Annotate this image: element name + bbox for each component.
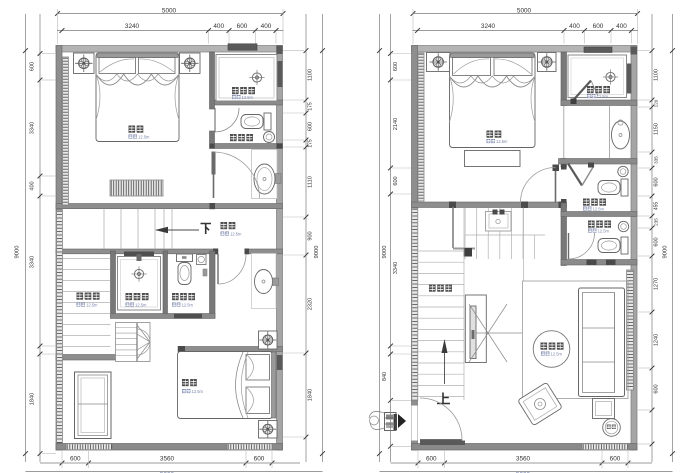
svg-text:9000: 9000 — [382, 246, 388, 259]
svg-text:3560: 3560 — [516, 456, 531, 463]
svg-text:12.5m: 12.5m — [598, 228, 610, 233]
svg-text:600: 600 — [254, 456, 265, 463]
svg-text:12.5m: 12.5m — [242, 95, 254, 100]
svg-text:3560: 3560 — [160, 456, 175, 463]
svg-text:1240: 1240 — [654, 334, 660, 346]
svg-text:1150: 1150 — [654, 123, 660, 135]
svg-text:12.5m: 12.5m — [182, 302, 194, 307]
svg-text:12.5m: 12.5m — [192, 389, 204, 394]
svg-text:400: 400 — [569, 23, 580, 30]
svg-text:2320: 2320 — [308, 298, 314, 310]
svg-text:120: 120 — [654, 99, 659, 107]
svg-text:840: 840 — [382, 372, 388, 381]
svg-text:400: 400 — [30, 181, 36, 190]
svg-text:12.5m: 12.5m — [86, 302, 98, 307]
svg-text:235: 235 — [654, 218, 659, 226]
svg-text:3240: 3240 — [481, 23, 496, 30]
svg-text:1270: 1270 — [654, 278, 660, 290]
svg-text:600: 600 — [610, 456, 621, 463]
svg-text:600: 600 — [654, 237, 660, 246]
svg-text:600: 600 — [308, 122, 314, 131]
svg-text:600: 600 — [593, 23, 604, 30]
svg-text:400: 400 — [616, 23, 627, 30]
svg-text:9000: 9000 — [15, 246, 21, 259]
svg-text:1840: 1840 — [30, 393, 36, 405]
svg-text:12.5m: 12.5m — [496, 139, 508, 144]
svg-text:335: 335 — [654, 156, 659, 164]
svg-text:3240: 3240 — [125, 23, 140, 30]
svg-text:3340: 3340 — [393, 262, 399, 274]
svg-text:12.5m: 12.5m — [138, 134, 150, 139]
svg-text:600: 600 — [30, 62, 36, 71]
svg-text:600: 600 — [426, 456, 437, 463]
svg-text:600: 600 — [654, 384, 660, 393]
svg-text:5000: 5000 — [162, 8, 177, 15]
svg-text:600: 600 — [393, 176, 399, 185]
svg-text:2140: 2140 — [393, 118, 399, 130]
svg-text:12.5m: 12.5m — [597, 94, 609, 99]
svg-text:3340: 3340 — [30, 122, 36, 134]
svg-text:5000: 5000 — [517, 8, 532, 15]
svg-text:600: 600 — [393, 62, 399, 71]
svg-text:12.5m: 12.5m — [551, 351, 563, 356]
svg-text:9000: 9000 — [314, 246, 320, 259]
svg-text:600: 600 — [237, 23, 248, 30]
svg-text:600: 600 — [654, 177, 660, 186]
svg-text:900: 900 — [308, 231, 314, 240]
svg-text:1110: 1110 — [308, 176, 314, 188]
svg-text:9000: 9000 — [663, 246, 669, 259]
svg-text:3340: 3340 — [30, 256, 36, 268]
svg-text:175: 175 — [308, 139, 314, 148]
svg-text:1100: 1100 — [654, 69, 660, 81]
svg-text:175: 175 — [308, 102, 314, 111]
svg-text:455: 455 — [654, 202, 660, 211]
svg-text:400: 400 — [213, 23, 224, 30]
svg-text:12.5m: 12.5m — [593, 206, 605, 211]
svg-text:400: 400 — [261, 23, 272, 30]
svg-text:600: 600 — [70, 456, 81, 463]
svg-text:12.5m: 12.5m — [230, 231, 242, 236]
svg-text:12.5m: 12.5m — [135, 302, 147, 307]
svg-text:1840: 1840 — [308, 389, 314, 401]
svg-text:1100: 1100 — [308, 69, 314, 81]
